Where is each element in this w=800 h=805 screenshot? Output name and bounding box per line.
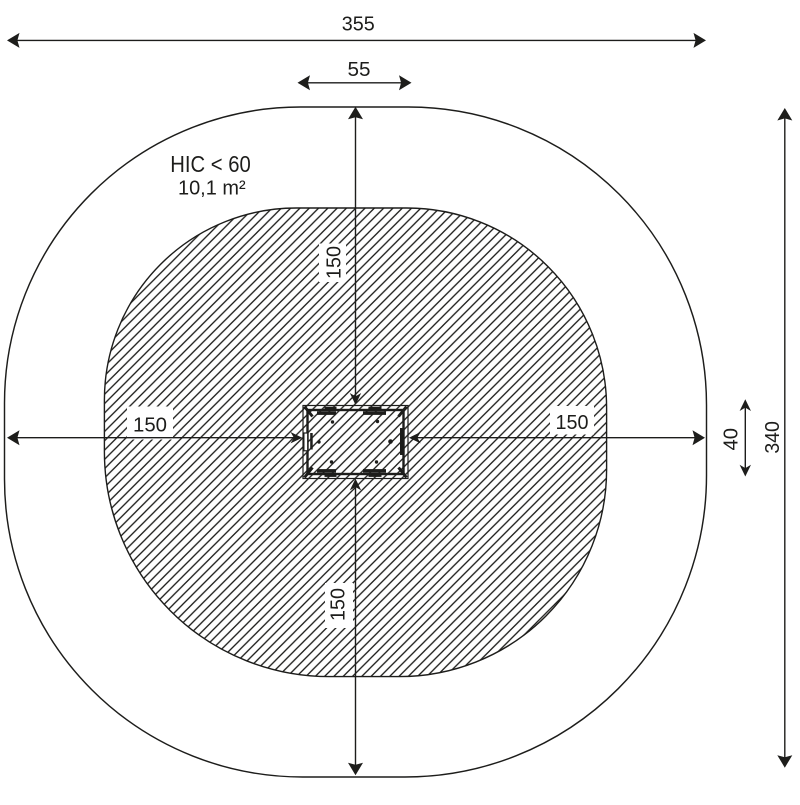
svg-text:40: 40 [720,428,743,451]
svg-text:150: 150 [327,588,350,621]
svg-text:55: 55 [348,58,371,81]
svg-text:10,1 m²: 10,1 m² [178,177,246,199]
svg-text:HIC < 60: HIC < 60 [170,151,251,177]
svg-text:340: 340 [761,421,784,454]
svg-text:150: 150 [556,411,589,434]
svg-text:150: 150 [133,413,167,436]
svg-text:355: 355 [342,13,375,36]
svg-text:150: 150 [322,246,345,279]
